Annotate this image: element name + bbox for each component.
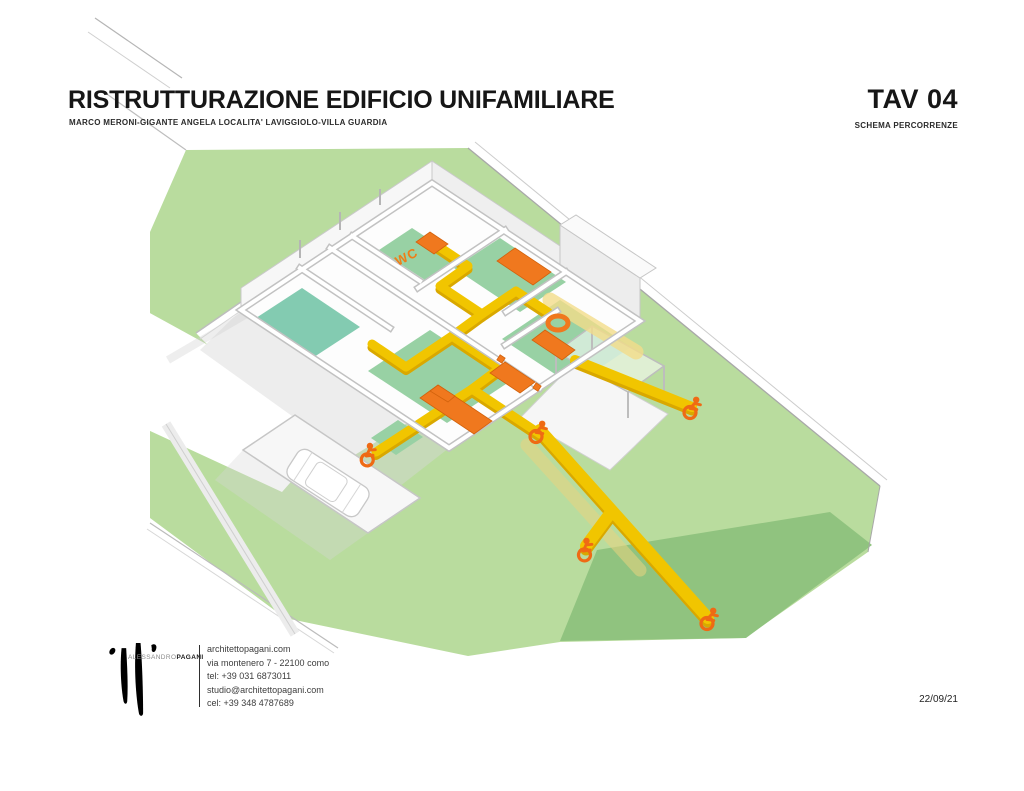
contact-mobile: cel: +39 348 4787689 — [207, 697, 329, 711]
contact-phone: tel: +39 031 6873011 — [207, 670, 329, 684]
architect-first-name: ALESSANDRO — [128, 654, 176, 661]
sheet-name: SCHEMA PERCORRENZE — [855, 121, 958, 130]
drawing-sheet: WC RISTRUTTURAZIONE EDIFICIO UNIFAMILIAR… — [0, 0, 1024, 791]
contact-block: architettopagani.com via montenero 7 - 2… — [207, 643, 329, 711]
page-title: RISTRUTTURAZIONE EDIFICIO UNIFAMILIARE — [68, 86, 615, 115]
sheet-date: 22/09/21 — [919, 694, 958, 705]
contact-website: architettopagani.com — [207, 643, 329, 657]
client-location: MARCO MERONI-GIGANTE ANGELA LOCALITA' LA… — [69, 118, 387, 127]
contact-address: via montenero 7 - 22100 como — [207, 657, 329, 671]
footer-divider — [199, 645, 200, 707]
architect-name: ALESSANDROPAGANI — [128, 654, 204, 661]
contact-email: studio@architettopagani.com — [207, 684, 329, 698]
sheet-number: TAV 04 — [867, 84, 958, 115]
